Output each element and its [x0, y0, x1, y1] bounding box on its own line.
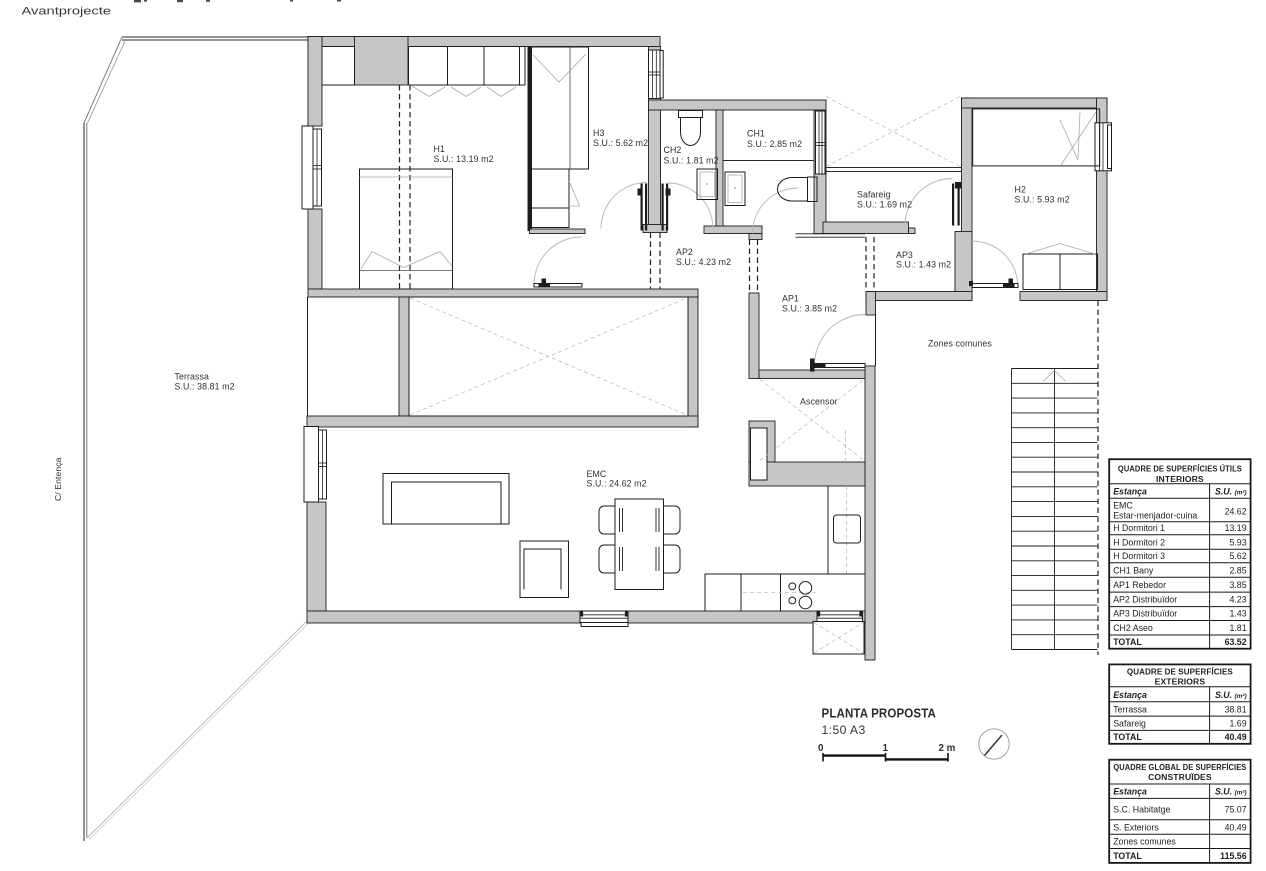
svg-text:QUADRE DE SUPERFÍCIES: QUADRE DE SUPERFÍCIES: [1127, 666, 1233, 676]
svg-text:CH1 Bany: CH1 Bany: [1113, 565, 1154, 575]
svg-text:C/ Entença: C/ Entença: [53, 457, 63, 501]
svg-text:AP3 Distribuïdor: AP3 Distribuïdor: [1113, 609, 1177, 619]
svg-text:S.U.: 1.43 m2: S.U.: 1.43 m2: [896, 260, 951, 270]
svg-text:TOTAL: TOTAL: [1113, 637, 1142, 647]
svg-text:Estar-menjador-cuina: Estar-menjador-cuina: [1113, 510, 1197, 520]
svg-text:63.52: 63.52: [1225, 637, 1247, 647]
svg-text:2 m: 2 m: [939, 743, 956, 754]
svg-text:S.U.: 13.19 m2: S.U.: 13.19 m2: [434, 154, 494, 164]
svg-text:4.23: 4.23: [1229, 595, 1246, 605]
svg-text:1:50 A3: 1:50 A3: [822, 723, 866, 737]
svg-text:Estança: Estança: [1113, 787, 1147, 797]
svg-text:QUADRE GLOBAL DE SUPERFÍCIES: QUADRE GLOBAL DE SUPERFÍCIES: [1113, 762, 1246, 772]
svg-text:INTERIORS: INTERIORS: [1156, 474, 1204, 484]
svg-text:H Dormitori 2: H Dormitori 2: [1113, 537, 1165, 547]
svg-text:CH1: CH1: [747, 129, 765, 139]
svg-text:Zones comunes: Zones comunes: [1113, 837, 1176, 847]
svg-text:Terrassa: Terrassa: [1113, 704, 1147, 714]
svg-text:Safareig: Safareig: [1113, 719, 1146, 729]
svg-text:S.U.: 4.23 m2: S.U.: 4.23 m2: [676, 257, 731, 267]
svg-text:5.62: 5.62: [1229, 551, 1246, 561]
svg-text:1.69: 1.69: [1229, 719, 1246, 729]
svg-text:EXTERIORS: EXTERIORS: [1155, 677, 1206, 687]
svg-text:AP2: AP2: [676, 247, 693, 257]
svg-text:CONSTRUÏDES: CONSTRUÏDES: [1148, 772, 1212, 782]
svg-text:S.U.: 1.81 m2: S.U.: 1.81 m2: [664, 155, 719, 165]
svg-text:H1: H1: [434, 144, 445, 154]
svg-text:1: 1: [883, 743, 889, 754]
svg-text:H Dormitori 1: H Dormitori 1: [1113, 523, 1165, 533]
svg-text:AP1 Rebedor: AP1 Rebedor: [1113, 580, 1166, 590]
svg-text:S.U.: 38.81 m2: S.U.: 38.81 m2: [175, 381, 235, 391]
svg-text:Ascensor: Ascensor: [800, 397, 837, 407]
svg-text:38.81: 38.81: [1225, 704, 1247, 714]
svg-text:S.U.: 5.62 m2: S.U.: 5.62 m2: [593, 138, 648, 148]
svg-text:AP2 Distribuïdor: AP2 Distribuïdor: [1113, 595, 1177, 605]
svg-text:115.56: 115.56: [1220, 851, 1247, 861]
svg-text:TOTAL: TOTAL: [1113, 851, 1142, 861]
svg-text:0: 0: [818, 743, 824, 754]
svg-text:EMC: EMC: [587, 469, 607, 479]
svg-text:S.U.: 1.69 m2: S.U.: 1.69 m2: [857, 199, 912, 209]
svg-text:AP3: AP3: [896, 250, 913, 260]
svg-text:Estança: Estança: [1113, 690, 1147, 700]
svg-text:Safareig: Safareig: [857, 190, 891, 200]
svg-text:24.62: 24.62: [1225, 507, 1247, 517]
svg-text:QUADRE DE SUPERFÍCIES ÚTILS: QUADRE DE SUPERFÍCIES ÚTILS: [1118, 463, 1242, 474]
svg-text:Avantprojecte: Avantprojecte: [22, 5, 112, 17]
svg-text:40.49: 40.49: [1225, 732, 1247, 742]
svg-text:5.93: 5.93: [1229, 537, 1246, 547]
svg-text:H Dormitori 3: H Dormitori 3: [1113, 551, 1165, 561]
svg-text:1.43: 1.43: [1229, 609, 1246, 619]
svg-text:CH2: CH2: [664, 145, 682, 155]
svg-text:PLANTA PROPOSTA: PLANTA PROPOSTA: [822, 707, 937, 721]
svg-text:3.85: 3.85: [1229, 580, 1246, 590]
svg-text:S.U.: 3.85 m2: S.U.: 3.85 m2: [782, 303, 837, 313]
svg-text:Terrassa: Terrassa: [175, 372, 210, 382]
svg-text:H3: H3: [593, 128, 604, 138]
svg-text:Estança: Estança: [1113, 486, 1147, 496]
svg-text:S.U.: 24.62 m2: S.U.: 24.62 m2: [587, 479, 647, 489]
svg-text:S.C. Habitatge: S.C. Habitatge: [1113, 805, 1170, 815]
svg-text:H2: H2: [1015, 185, 1026, 195]
svg-text:1.81: 1.81: [1229, 623, 1246, 633]
svg-text:75.07: 75.07: [1225, 805, 1247, 815]
svg-text:S.U.: 2.85 m2: S.U.: 2.85 m2: [747, 139, 802, 149]
svg-text:13.19: 13.19: [1225, 523, 1247, 533]
svg-text:CH2 Aseo: CH2 Aseo: [1113, 623, 1153, 633]
svg-text:Zones comunes: Zones comunes: [928, 339, 992, 349]
svg-text:EMC: EMC: [1113, 500, 1133, 510]
svg-text:TOTAL: TOTAL: [1113, 732, 1142, 742]
svg-text:40.49: 40.49: [1225, 822, 1247, 832]
svg-text:S. Exteriors: S. Exteriors: [1113, 822, 1159, 832]
svg-text:S.U.: 5.93 m2: S.U.: 5.93 m2: [1015, 194, 1070, 204]
svg-text:AP1: AP1: [782, 294, 799, 304]
svg-text:2.85: 2.85: [1229, 565, 1246, 575]
